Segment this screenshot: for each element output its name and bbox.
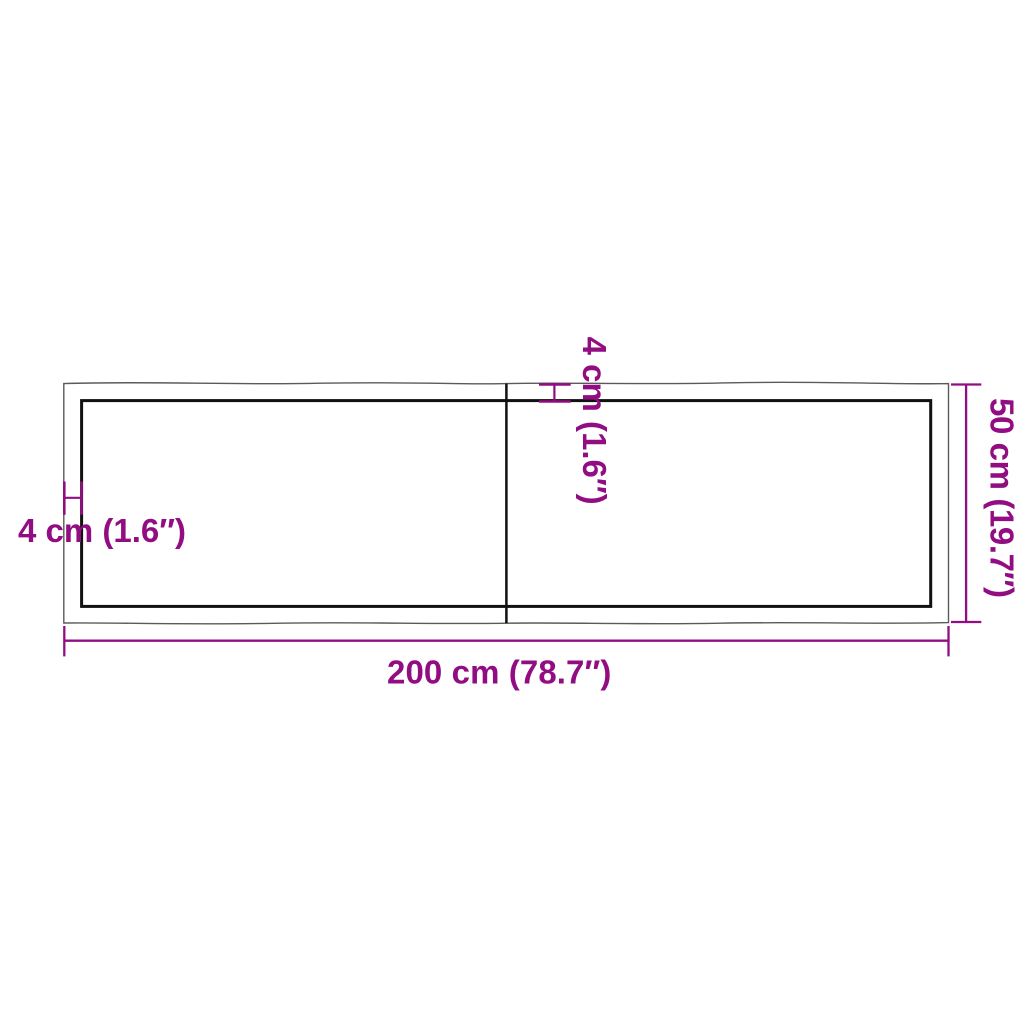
- svg-text:50 cm (19.7″): 50 cm (19.7″): [984, 398, 1021, 598]
- svg-text:4 cm (1.6″): 4 cm (1.6″): [576, 337, 613, 505]
- svg-text:200 cm (78.7″): 200 cm (78.7″): [387, 654, 612, 691]
- svg-text:4 cm (1.6″): 4 cm (1.6″): [18, 512, 186, 549]
